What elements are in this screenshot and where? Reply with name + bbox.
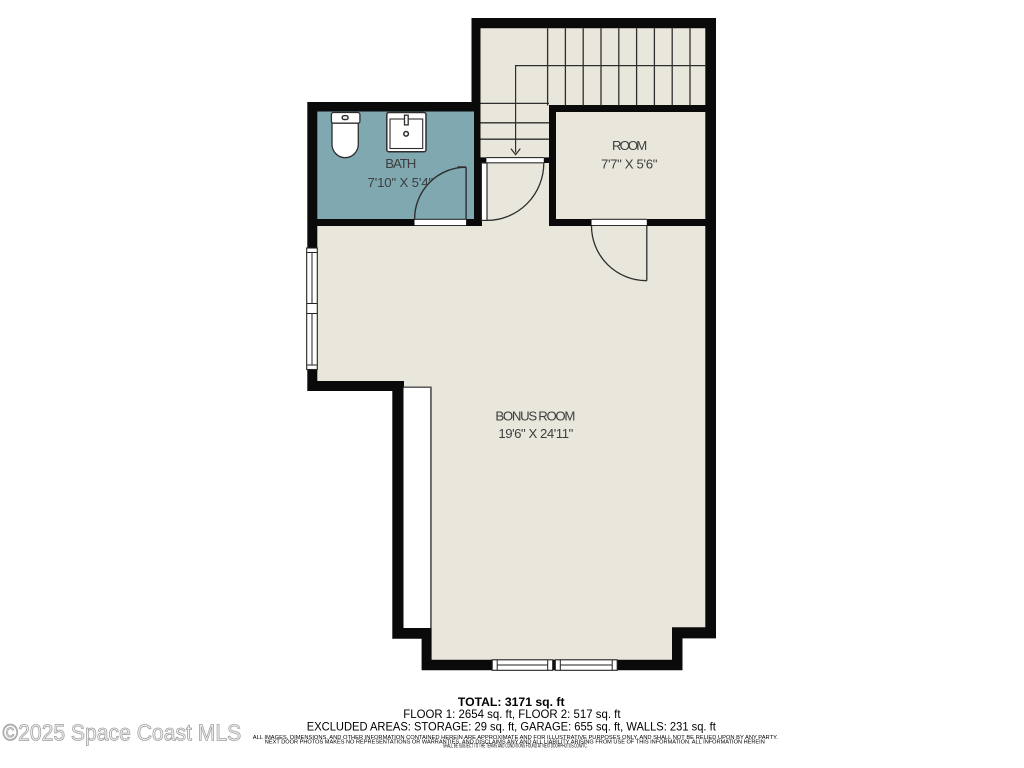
svg-text:7'10" X 5'4": 7'10" X 5'4" <box>368 175 434 190</box>
svg-text:EXCLUDED AREAS: STORAGE: 29 sq: EXCLUDED AREAS: STORAGE: 29 sq. ft, GARA… <box>307 719 717 733</box>
svg-text:19'6" X 24'11": 19'6" X 24'11" <box>498 426 573 441</box>
svg-text:ROOM: ROOM <box>612 138 647 153</box>
svg-text:©2025 Space Coast MLS: ©2025 Space Coast MLS <box>3 720 242 746</box>
svg-text:BATH: BATH <box>385 156 416 171</box>
svg-text:7'7" X 5'6": 7'7" X 5'6" <box>601 157 658 172</box>
svg-text:SHALL BE SUBJECT TO THE TERMS: SHALL BE SUBJECT TO THE TERMS AND CONDIT… <box>443 744 588 750</box>
svg-text:BONUS ROOM: BONUS ROOM <box>495 409 575 424</box>
